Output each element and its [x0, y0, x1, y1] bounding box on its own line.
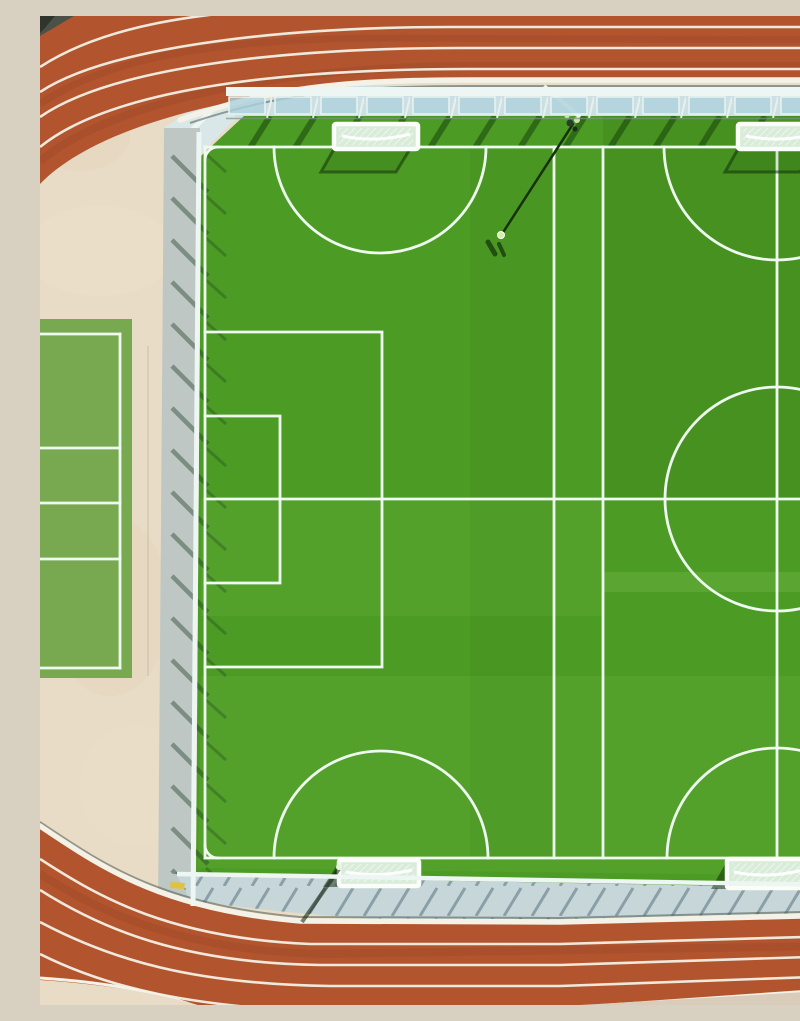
aerial-photo-stadium: Top-down drone view of a sports complex:… — [40, 16, 800, 1005]
goal-shadow — [321, 149, 410, 172]
yellow-curb-mark — [170, 882, 185, 889]
court-surface — [40, 319, 132, 678]
pole-base-dot — [498, 232, 505, 239]
scene-canvas: aerial-photograph — [40, 16, 800, 1005]
fence-shadows-top — [236, 116, 800, 147]
volleyball-court — [40, 319, 132, 678]
pole-head — [567, 120, 574, 127]
fence-rail — [226, 87, 800, 96]
pole-lamp — [573, 127, 578, 132]
goal-shadow — [725, 149, 800, 172]
pole-base-dot — [336, 864, 342, 870]
mowing-tone — [470, 150, 554, 856]
fence-top — [226, 87, 800, 119]
football-turf — [166, 116, 800, 888]
windscreen-panels — [226, 96, 800, 118]
goal-top-right — [725, 124, 800, 172]
